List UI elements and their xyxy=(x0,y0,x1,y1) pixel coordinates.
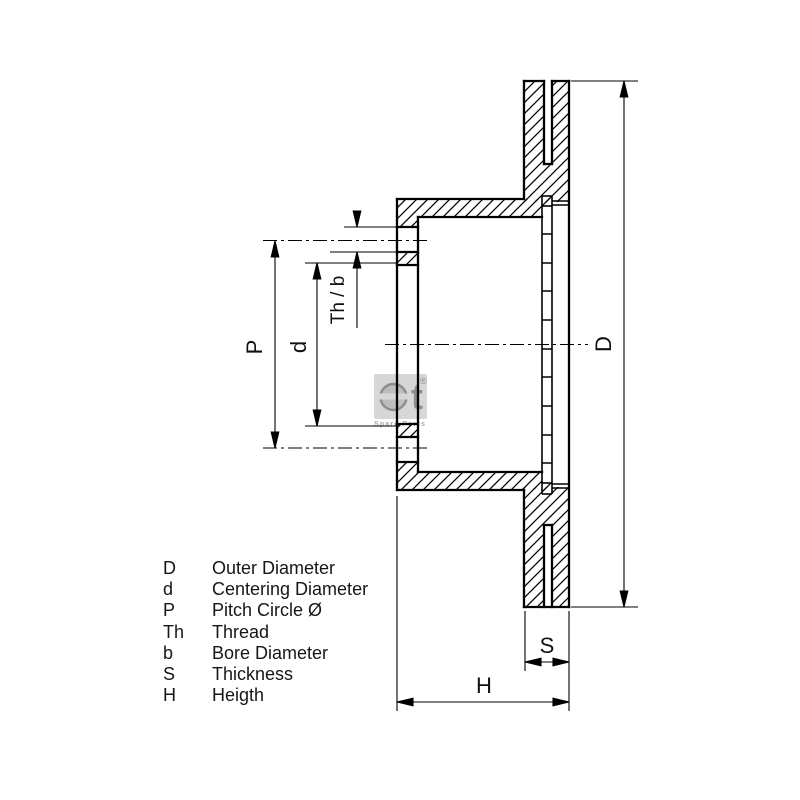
legend-description: Thickness xyxy=(212,664,293,684)
dimension-centering-diameter xyxy=(313,263,321,426)
legend-symbol: H xyxy=(163,685,176,705)
legend-symbol: d xyxy=(163,579,173,599)
vent-slot-top xyxy=(544,77,552,165)
dimension-thread-bore xyxy=(353,211,361,328)
legend-description: Outer Diameter xyxy=(212,558,335,578)
brake-disc-diagram: t ® Spare Parts xyxy=(0,0,800,800)
dimension-height xyxy=(397,698,569,706)
legend-symbol: b xyxy=(163,643,173,663)
label-centering-diameter: d xyxy=(286,341,311,353)
hatch-upper-wall-a xyxy=(397,217,418,227)
label-thickness: S xyxy=(540,633,555,658)
legend-description: Centering Diameter xyxy=(212,579,368,599)
bolt-hole-top xyxy=(397,227,419,253)
label-height: H xyxy=(476,673,492,698)
hatch-lower-flange xyxy=(397,472,542,490)
legend: D Outer Diameter d Centering Diameter P … xyxy=(163,558,368,705)
hatch-lower-wall-b xyxy=(397,462,418,472)
hatch-upper-wall-b xyxy=(397,252,418,265)
dimension-pitch-circle xyxy=(271,241,279,448)
label-outer-diameter: D xyxy=(591,336,616,352)
hatch-upper-flange xyxy=(397,199,542,217)
bolt-hole-bottom xyxy=(397,437,419,463)
dimension-outer-diameter xyxy=(620,81,628,607)
legend-description: Heigth xyxy=(212,685,264,705)
vent-slot-bottom xyxy=(544,525,552,610)
dimension-thickness xyxy=(525,658,569,666)
legend-symbol: P xyxy=(163,600,175,620)
legend-description: Bore Diameter xyxy=(212,643,328,663)
hatch-lower-ring-base xyxy=(524,487,569,525)
legend-symbol: D xyxy=(163,558,176,578)
dimension-lines xyxy=(271,81,628,706)
hatch-lower-wall-a xyxy=(397,424,418,437)
legend-description: Pitch Circle Ø xyxy=(212,600,322,620)
extension-lines xyxy=(305,81,638,711)
registered-mark-icon: ® xyxy=(420,376,427,386)
label-pitch-circle: P xyxy=(242,340,267,355)
technical-drawing-page: t ® Spare Parts xyxy=(0,0,800,800)
hatch-vane-top xyxy=(542,196,552,206)
label-thread-bore: Th / b xyxy=(328,276,349,325)
dt-logo-globe-stripe xyxy=(378,394,410,400)
legend-symbol: S xyxy=(163,664,175,684)
legend-description: Thread xyxy=(212,622,269,642)
legend-symbol: Th xyxy=(163,622,184,642)
vane-rungs xyxy=(542,234,552,463)
